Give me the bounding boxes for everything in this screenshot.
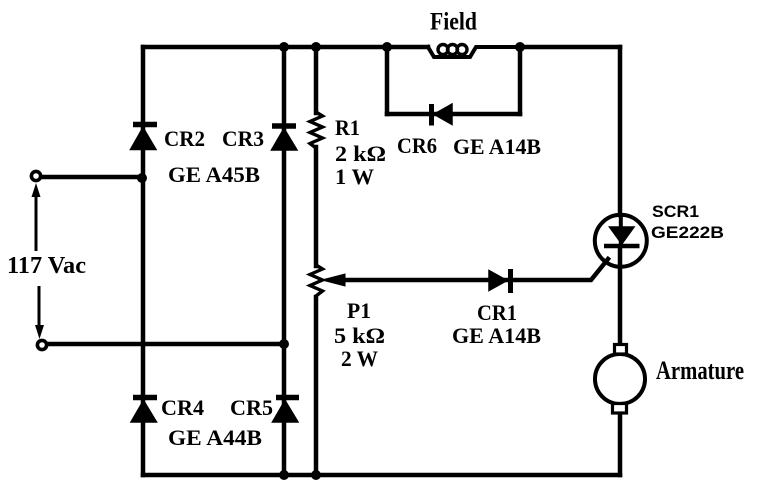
svg-text:CR2: CR2 [164, 126, 205, 151]
svg-text:117 Vac: 117 Vac [7, 253, 86, 279]
svg-text:GE A14B: GE A14B [453, 134, 541, 159]
svg-text:CR4: CR4 [161, 395, 204, 420]
svg-text:GE A14B: GE A14B [452, 323, 541, 348]
svg-text:Field: Field [430, 8, 477, 35]
svg-text:SCR1: SCR1 [652, 202, 699, 221]
svg-text:2 kΩ: 2 kΩ [335, 141, 386, 166]
svg-text:1 W: 1 W [335, 164, 374, 189]
svg-text:GE222B: GE222B [651, 223, 724, 242]
svg-text:5 kΩ: 5 kΩ [334, 323, 385, 348]
svg-text:R1: R1 [335, 115, 360, 140]
svg-text:P1: P1 [347, 298, 371, 323]
svg-text:CR1: CR1 [477, 300, 517, 325]
svg-text:2 W: 2 W [341, 346, 378, 371]
svg-text:CR5: CR5 [230, 395, 273, 420]
svg-text:GE A44B: GE A44B [168, 425, 262, 450]
svg-text:CR3: CR3 [222, 126, 264, 151]
svg-text:CR6: CR6 [397, 133, 437, 158]
svg-text:Armature: Armature [656, 356, 744, 385]
svg-text:GE A45B: GE A45B [168, 162, 260, 187]
